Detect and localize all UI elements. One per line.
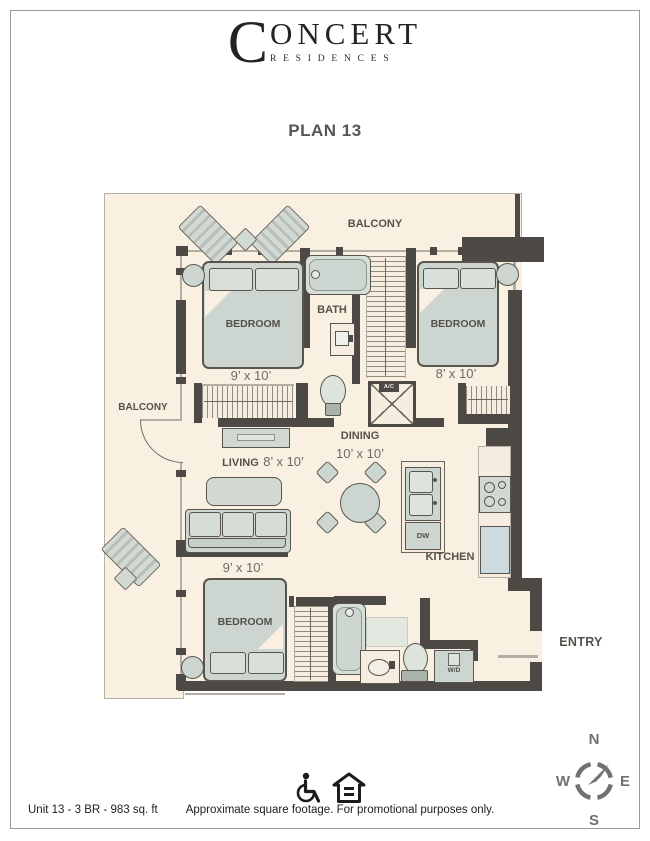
disclaimer: Approximate square footage. For promotio… — [175, 804, 505, 816]
wall-bath-left-lower — [296, 383, 308, 421]
compass-needle — [588, 764, 609, 785]
plan-title: PLAN 13 — [0, 121, 650, 141]
wall-wd-top — [420, 640, 478, 649]
toilet-tank — [401, 670, 428, 682]
double-sink-icon — [405, 467, 441, 521]
unit-info: Unit 13 - 3 BR - 983 sq. ft — [28, 804, 158, 816]
sofa-cushion — [222, 512, 254, 537]
nightstand-icon — [496, 263, 519, 286]
wall-right-step — [508, 578, 542, 591]
compass-east: E — [620, 773, 630, 790]
fridge-icon — [480, 526, 510, 574]
room-label-bath: BATH — [304, 304, 360, 316]
wall-closet1-jamb — [194, 383, 202, 423]
window-line-bottom — [185, 693, 285, 695]
balcony-left-area — [104, 252, 184, 699]
washer-dryer-label: W/D — [435, 667, 473, 674]
coffee-table-icon — [206, 477, 282, 506]
burner — [484, 482, 495, 493]
closet-bedroom1 — [202, 386, 294, 418]
room-label-balcony-left: BALCONY — [112, 402, 174, 413]
bathtub-icon — [305, 255, 371, 295]
window-tick — [176, 648, 186, 655]
room-label-balcony-top: BALCONY — [340, 218, 410, 230]
room-label-entry: ENTRY — [546, 635, 616, 649]
bath-vanity-icon — [330, 323, 355, 356]
closet-rod — [204, 401, 292, 402]
wall-bedroom2-left — [406, 248, 416, 348]
room-label-kitchen: KITCHEN — [410, 551, 490, 563]
burner — [484, 496, 495, 507]
blanket-fold — [420, 289, 444, 313]
room-label-living: LIVING — [222, 457, 259, 469]
pillow — [210, 652, 246, 674]
faucet — [345, 608, 354, 617]
room-label-bedroom-top-left: BEDROOM — [204, 318, 302, 330]
pillow — [209, 268, 253, 291]
bath-vanity-icon — [360, 650, 400, 684]
brand-name: ONCERT — [270, 18, 422, 51]
pillow — [460, 268, 496, 289]
dishwasher-icon: DW — [405, 522, 441, 550]
window-tick — [430, 247, 437, 255]
closet-bedroom2 — [466, 386, 510, 414]
pillow — [423, 268, 459, 289]
ac-label: A/C — [379, 383, 399, 392]
wall-right-lower-1 — [530, 591, 542, 631]
sofa-seat — [188, 538, 286, 548]
window-tick — [176, 246, 188, 256]
room-label-bedroom-top-right: BEDROOM — [419, 318, 497, 330]
wall-closet3-top — [296, 597, 336, 606]
faucet — [389, 661, 395, 669]
stove-icon — [479, 476, 511, 513]
faucet — [433, 501, 437, 505]
dining-table-icon — [340, 483, 380, 523]
bed-bedroom-top-right: BEDROOM — [417, 261, 499, 367]
closet-hall — [366, 256, 406, 378]
page: { "brand": {"initial": "C", "rest": "ONC… — [0, 0, 650, 841]
room-label-dining: DINING — [325, 430, 395, 442]
wall-kitchen-nook — [486, 428, 512, 448]
entry-door-leaf — [498, 655, 538, 658]
brand-initial: C — [228, 18, 268, 67]
closet-rod — [385, 258, 386, 376]
wall-hall-horizontal — [218, 418, 334, 427]
washer-dryer-icon: W/D — [434, 650, 474, 683]
brand-logo: C ONCERT RESIDENCES — [0, 18, 650, 67]
window-tick — [176, 470, 186, 477]
tv-console-icon — [222, 428, 290, 448]
sofa-icon — [185, 509, 291, 553]
room-dims-bedroom-top-left: 9’ x 10’ — [202, 368, 300, 383]
kitchen-island: DW — [401, 461, 445, 553]
compass-rose-icon: N W E S — [552, 724, 636, 828]
compass-west: W — [556, 773, 571, 790]
sink — [368, 659, 390, 676]
room-label-bedroom-bottom: BEDROOM — [205, 616, 285, 628]
bed-bedroom-top-left: BEDROOM — [202, 261, 304, 369]
burner — [498, 481, 506, 489]
sink — [335, 331, 349, 346]
faucet — [348, 335, 353, 342]
burner — [498, 498, 506, 506]
bath-mat — [366, 617, 408, 647]
wall-balcony-divider — [515, 194, 520, 239]
closet-bedroom3 — [294, 606, 328, 682]
closet-rod — [468, 399, 508, 400]
sofa-cushion — [255, 512, 287, 537]
brand-subtitle: RESIDENCES — [270, 54, 422, 64]
wall-top-right-block — [462, 237, 544, 262]
faucet — [433, 478, 437, 482]
equal-housing-icon — [331, 772, 367, 804]
window-tick — [176, 377, 186, 384]
ac-closet: A/C — [368, 381, 416, 427]
sink-basin — [409, 494, 433, 516]
nightstand-icon — [182, 264, 205, 287]
accessibility-icon — [294, 772, 322, 804]
room-dims-bedroom-bottom: 9’ x 10’ — [203, 560, 283, 575]
sofa-cushion — [189, 512, 221, 537]
wall-left-chunk — [176, 300, 186, 374]
dishwasher-label: DW — [406, 531, 440, 540]
toilet-tank — [325, 403, 341, 416]
compass-south: S — [589, 812, 599, 828]
closet-rod — [310, 608, 311, 680]
nightstand-icon — [181, 656, 204, 679]
pillow — [248, 652, 284, 674]
wall-closet2-bottom — [458, 414, 512, 424]
compass-north: N — [589, 731, 600, 748]
room-dims-living: 8’ x 10’ — [263, 454, 304, 469]
window-tick — [336, 247, 343, 255]
window-tick — [176, 590, 186, 597]
room-label-living-row: LIVING 8’ x 10’ — [198, 453, 328, 471]
balcony-top-area — [104, 193, 522, 254]
blanket-fold — [205, 291, 231, 317]
faucet — [311, 270, 320, 279]
room-dims-dining: 10’ x 10’ — [325, 446, 395, 461]
wall-closet2-jamb — [458, 383, 466, 417]
pillow — [255, 268, 299, 291]
room-dims-bedroom-top-right: 8’ x 10’ — [417, 366, 495, 381]
sink-basin — [409, 471, 433, 493]
bed-bedroom-bottom: BEDROOM — [203, 578, 287, 682]
